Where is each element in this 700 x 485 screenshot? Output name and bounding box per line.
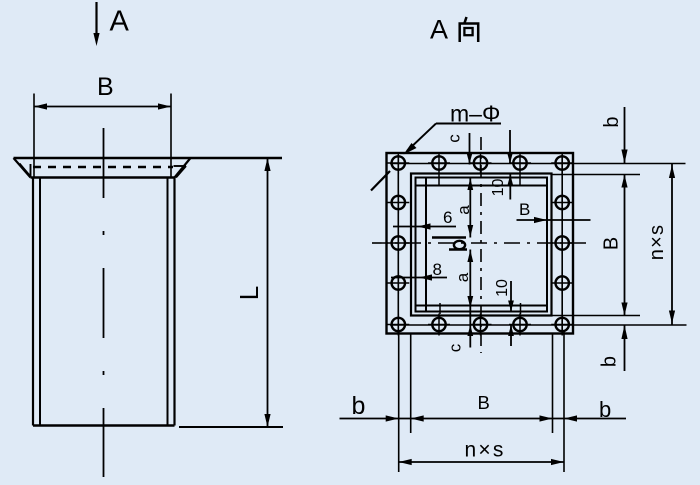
svg-text:L: L [234,286,264,300]
svg-text:10: 10 [490,179,507,197]
svg-text:n×s: n×s [646,224,668,260]
svg-text:c: c [446,343,465,352]
svg-text:B: B [478,392,490,413]
svg-text:B: B [601,237,623,250]
svg-text:a: a [453,272,472,282]
svg-text:c: c [445,134,464,143]
svg-text:6: 6 [443,208,452,227]
svg-text:A: A [430,15,448,45]
svg-text:n×s: n×s [465,438,506,461]
svg-text:a: a [454,205,473,215]
svg-text:b: b [352,392,366,420]
svg-text:A: A [110,6,130,38]
svg-text:B: B [97,73,114,101]
svg-text:b: b [601,116,623,127]
svg-text:B: B [519,200,530,219]
svg-text:8: 8 [433,260,442,279]
svg-text:b: b [599,356,621,367]
svg-text:10: 10 [494,279,511,297]
svg-text:b: b [599,397,611,422]
